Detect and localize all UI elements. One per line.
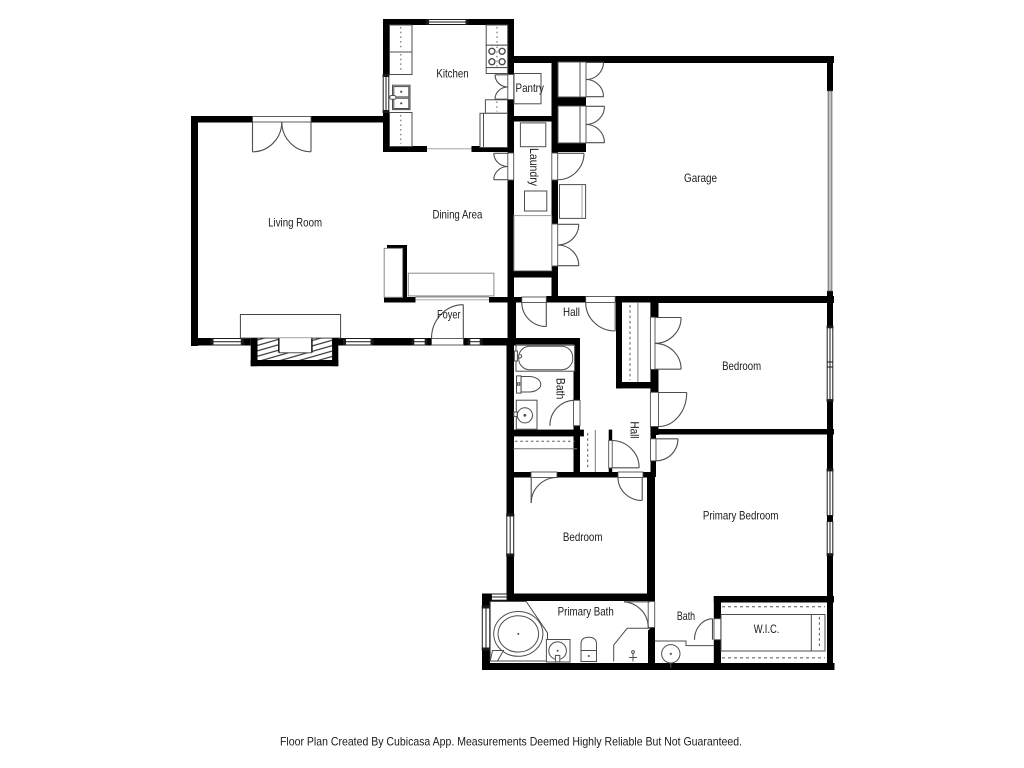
svg-text:Bedroom: Bedroom (563, 530, 603, 544)
svg-text:Bedroom: Bedroom (722, 359, 761, 373)
svg-text:Living Room: Living Room (268, 216, 322, 230)
svg-text:Pantry: Pantry (516, 81, 544, 95)
svg-text:Hall: Hall (627, 422, 641, 439)
svg-text:Hall: Hall (563, 305, 580, 319)
svg-text:W.I.C.: W.I.C. (754, 622, 780, 636)
svg-text:Laundry: Laundry (527, 148, 541, 186)
svg-text:Garage: Garage (684, 171, 717, 185)
svg-text:Primary Bath: Primary Bath (558, 604, 614, 618)
svg-text:Kitchen: Kitchen (436, 66, 468, 80)
svg-text:Floor Plan Created By Cubicasa: Floor Plan Created By Cubicasa App. Meas… (280, 735, 742, 748)
svg-text:Dining Area: Dining Area (432, 208, 482, 222)
svg-text:Foyer: Foyer (437, 307, 461, 321)
svg-text:Bath: Bath (553, 378, 567, 399)
svg-text:Bath: Bath (677, 609, 695, 623)
svg-text:Primary Bedroom: Primary Bedroom (703, 509, 779, 523)
